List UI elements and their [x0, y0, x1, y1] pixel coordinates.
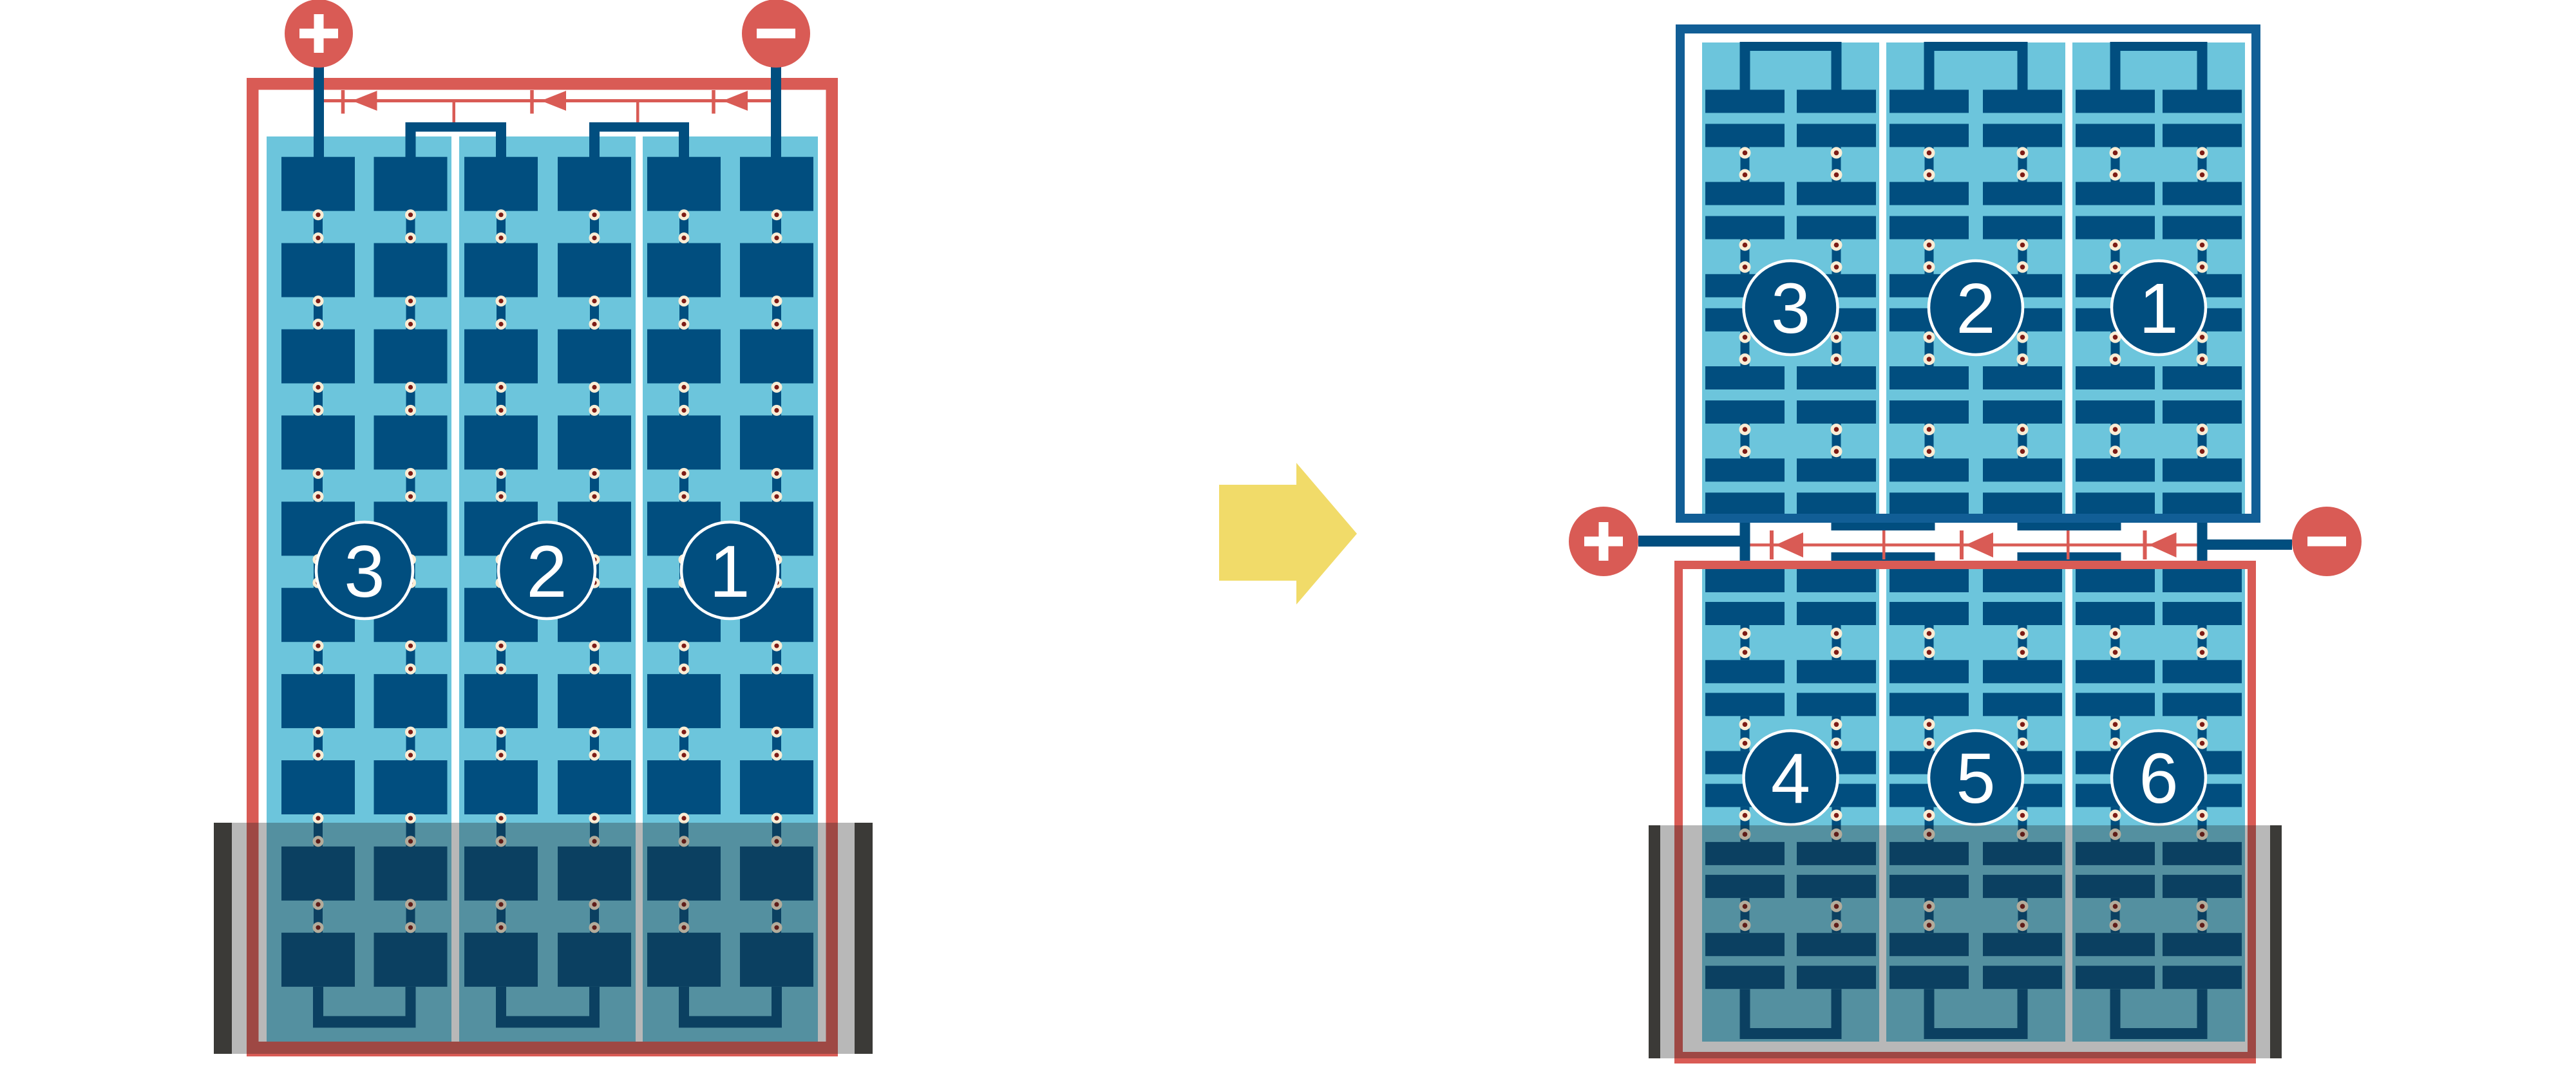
svg-text:1: 1	[709, 531, 750, 613]
svg-text:2: 2	[526, 531, 567, 613]
svg-text:3: 3	[1771, 269, 1810, 348]
svg-text:5: 5	[1956, 739, 1995, 818]
svg-text:3: 3	[344, 531, 384, 613]
svg-text:6: 6	[2139, 739, 2178, 818]
svg-text:4: 4	[1771, 739, 1810, 818]
svg-text:1: 1	[2139, 269, 2178, 348]
svg-text:2: 2	[1956, 269, 1995, 348]
